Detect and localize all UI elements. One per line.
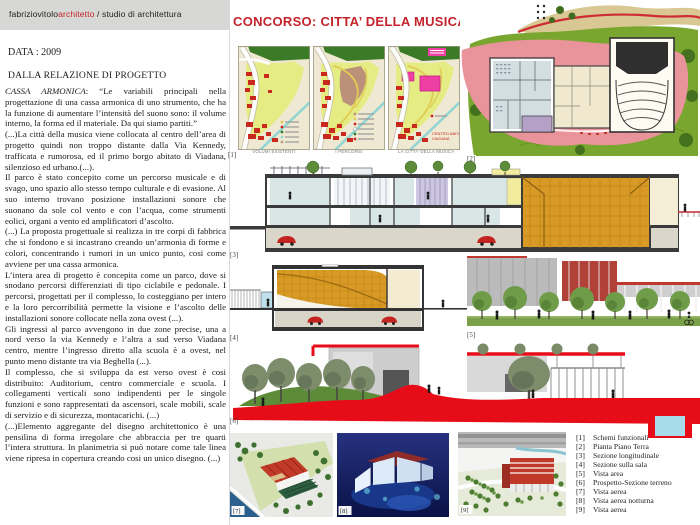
figure-legend: [1]Schemi funzionali [2]Pianta Piano Ter… — [576, 433, 672, 514]
figure-tag-7: [7] — [233, 508, 241, 515]
figure-prospetto-terreno — [233, 340, 700, 438]
legend-row: [6]Prospetto-Sezione terreno — [576, 478, 672, 487]
studio-name: fabriziovitolo — [9, 9, 58, 19]
paragraph: Gli ingressi al parco avvengono in due z… — [5, 324, 226, 367]
studio-logo: fabriziovitoloarchitetto / studio di arc… — [9, 9, 182, 19]
paragraph: (...)Elemento aggregante del disegno arc… — [5, 421, 226, 464]
figure-sezione-longitudinale — [230, 160, 700, 260]
paragraph: Il parco è stato concepito come un perco… — [5, 172, 226, 226]
legend-row: [1]Schemi funzionali — [576, 433, 672, 442]
studio-name-accent: architetto — [58, 9, 94, 19]
figure-tag-6: [6] — [230, 417, 238, 425]
paragraph: (...)La città della musica viene colloca… — [5, 129, 226, 172]
section-heading: DALLA RELAZIONE DI PROGETTO — [8, 70, 166, 81]
figure-render-aerea-1: [7] — [230, 433, 333, 517]
legend-row: [8]Vista aerea notturna — [576, 496, 672, 505]
site-header[interactable]: fabriziovitoloarchitetto / studio di arc… — [0, 0, 229, 30]
map-caption: I PERCORSI — [323, 150, 375, 154]
figure-tag-5: [5] — [467, 331, 475, 339]
map-annotation: VIADANA — [432, 136, 450, 141]
legend-row: [4]Sezione sulla sala — [576, 460, 672, 469]
map-caption: VOLUMI ESISTENTI — [248, 150, 300, 154]
map-caption: LA CITTA’ DELLA MUSICA — [398, 150, 450, 154]
figure-tag-9: [9] — [461, 507, 469, 514]
project-date: DATA : 2009 — [8, 47, 61, 58]
figure-render-notturna: [8] — [337, 433, 449, 517]
figure-tag-3: [3] — [230, 251, 238, 259]
roof-trees — [307, 161, 510, 175]
figure-pianta-piano-terra — [460, 0, 700, 161]
map-percorsi: I PERCORSI — [313, 46, 385, 150]
paragraph: (...) La proposta progettuale si realizz… — [5, 226, 226, 269]
figure-render-aerea-2: [9] — [458, 432, 566, 516]
paragraph: Il complesso, che si sviluppa da est ver… — [5, 367, 226, 421]
studio-suffix: / studio di architettura — [95, 9, 182, 19]
legend-row: [7]Vista aerea — [576, 487, 672, 496]
legend-row: [2]Pianta Piano Terra — [576, 442, 672, 451]
figure-tag-8: [8] — [340, 508, 348, 515]
figure-sezione-sala — [230, 264, 470, 334]
figure-vista — [467, 256, 700, 332]
paragraph: CASSA ARMONICA: “Le variabili principali… — [5, 86, 226, 129]
portfolio-page: fabriziovitoloarchitetto / studio di arc… — [0, 0, 700, 525]
paragraph: L’intera area di progetto è concepita co… — [5, 270, 226, 324]
legend-row: [5]Vista area — [576, 469, 672, 478]
figure-schemi-funzionali: VOLUMI ESISTENTI — [238, 46, 460, 158]
map-citta-della-musica: CENTRO ABITATO VIADANA LA CITTA’ DELLA M… — [388, 46, 460, 150]
legend-row: [3]Sezione longitudinale — [576, 451, 672, 460]
figure-tag-1: [1] — [228, 151, 236, 159]
map-volumi-esistenti: VOLUMI ESISTENTI — [238, 46, 310, 150]
project-description: CASSA ARMONICA: “Le variabili principali… — [5, 86, 226, 464]
legend-row: [9]Vista aerea — [576, 505, 672, 514]
